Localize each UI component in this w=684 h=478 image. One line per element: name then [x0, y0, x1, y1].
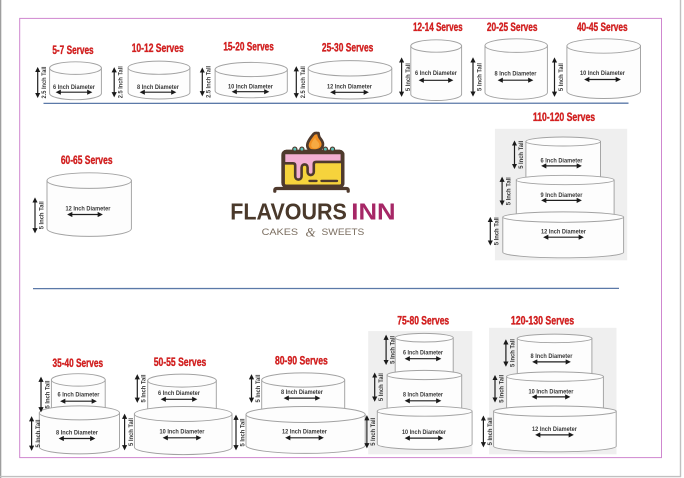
svg-text:40-45 Serves: 40-45 Serves	[577, 20, 628, 34]
svg-text:5 Inch Tall: 5 Inch Tall	[558, 63, 565, 91]
svg-text:35-40 Serves: 35-40 Serves	[53, 356, 104, 370]
svg-text:5 Inch Tall: 5 Inch Tall	[498, 375, 505, 403]
svg-text:5 Inch Tall: 5 Inch Tall	[38, 201, 45, 229]
svg-text:10-12 Serves: 10-12 Serves	[132, 41, 184, 55]
svg-text:6 Inch Diameter: 6 Inch Diameter	[541, 158, 583, 165]
svg-text:15-20 Serves: 15-20 Serves	[223, 39, 274, 53]
svg-text:SWEETS: SWEETS	[322, 227, 365, 237]
svg-text:5 Inch Tall: 5 Inch Tall	[378, 373, 385, 401]
svg-text:12 Inch Diameter: 12 Inch Diameter	[282, 429, 327, 436]
svg-text:5 Inch Tall: 5 Inch Tall	[44, 380, 51, 408]
svg-text:5 Inch Tall: 5 Inch Tall	[390, 336, 397, 364]
svg-text:8 Inch Diameter: 8 Inch Diameter	[137, 84, 179, 91]
svg-text:5 Inch Tall: 5 Inch Tall	[476, 63, 483, 91]
svg-text:8 Inch Diameter: 8 Inch Diameter	[403, 392, 443, 399]
svg-text:5 Inch Tall: 5 Inch Tall	[494, 217, 501, 245]
svg-text:&: &	[305, 224, 316, 239]
svg-text:6 Inch Diameter: 6 Inch Diameter	[53, 84, 95, 91]
svg-text:5 Inch Tall: 5 Inch Tall	[405, 63, 412, 91]
svg-text:8 Inch Diameter: 8 Inch Diameter	[56, 430, 98, 437]
svg-text:12 Inch Diameter: 12 Inch Diameter	[66, 205, 111, 212]
svg-text:5 Inch Tall: 5 Inch Tall	[505, 177, 512, 205]
svg-text:5 Inch Tall: 5 Inch Tall	[239, 418, 246, 446]
svg-text:6 Inch Diameter: 6 Inch Diameter	[58, 392, 100, 399]
svg-text:5 Inch Tall: 5 Inch Tall	[141, 374, 148, 402]
svg-text:10 Inch Diameter: 10 Inch Diameter	[160, 429, 205, 436]
svg-text:12 Inch Diameter: 12 Inch Diameter	[541, 229, 586, 236]
svg-text:50-55 Serves: 50-55 Serves	[154, 355, 207, 369]
svg-text:5 Inch Tall: 5 Inch Tall	[518, 141, 525, 169]
svg-text:10 Inch Diameter: 10 Inch Diameter	[402, 429, 446, 436]
svg-text:10 Inch Diameter: 10 Inch Diameter	[580, 70, 625, 77]
svg-text:6 Inch Diameter: 6 Inch Diameter	[158, 390, 200, 397]
svg-text:2.5 Inch Tall: 2.5 Inch Tall	[300, 66, 307, 98]
svg-text:75-80 Serves: 75-80 Serves	[397, 314, 449, 328]
svg-text:20-25 Serves: 20-25 Serves	[487, 20, 538, 34]
svg-text:5 Inch Tall: 5 Inch Tall	[255, 374, 262, 402]
svg-text:120-130 Serves: 120-130 Serves	[511, 314, 575, 328]
svg-text:8 Inch Diameter: 8 Inch Diameter	[495, 71, 537, 78]
svg-text:10 Inch Diameter: 10 Inch Diameter	[228, 83, 273, 90]
svg-text:12 Inch Diameter: 12 Inch Diameter	[327, 84, 372, 91]
svg-text:8 Inch Diameter: 8 Inch Diameter	[531, 353, 573, 360]
svg-text:110-120 Serves: 110-120 Serves	[533, 110, 595, 124]
svg-text:12 Inch Diameter: 12 Inch Diameter	[532, 426, 577, 433]
svg-text:2.5 Inch Tall: 2.5 Inch Tall	[41, 66, 48, 98]
svg-text:9 Inch Diameter: 9 Inch Diameter	[541, 192, 583, 199]
svg-text:FLAVOURS: FLAVOURS	[230, 199, 347, 225]
svg-text:INN: INN	[351, 199, 395, 225]
svg-text:80-90 Serves: 80-90 Serves	[275, 353, 328, 367]
svg-text:2.5 Inch Tall: 2.5 Inch Tall	[118, 66, 125, 98]
svg-text:60-65 Serves: 60-65 Serves	[61, 153, 113, 167]
svg-text:12-14 Serves: 12-14 Serves	[413, 20, 463, 34]
svg-text:5 Inch Tall: 5 Inch Tall	[509, 339, 516, 367]
svg-text:25-30 Serves: 25-30 Serves	[322, 40, 374, 54]
svg-text:6 Inch Diameter: 6 Inch Diameter	[403, 350, 443, 357]
svg-text:CAKES: CAKES	[262, 227, 299, 237]
svg-text:10 Inch Diameter: 10 Inch Diameter	[529, 389, 574, 396]
svg-text:5-7 Serves: 5-7 Serves	[52, 43, 94, 57]
svg-text:5 Inch Tall: 5 Inch Tall	[370, 418, 377, 446]
svg-text:5 Inch Tall: 5 Inch Tall	[487, 417, 494, 445]
svg-text:5 Inch Tall: 5 Inch Tall	[35, 419, 42, 447]
svg-text:2.5 Inch Tall: 2.5 Inch Tall	[206, 66, 213, 98]
svg-text:8 Inch Diameter: 8 Inch Diameter	[281, 389, 323, 396]
svg-text:6 Inch Diameter: 6 Inch Diameter	[415, 70, 457, 77]
